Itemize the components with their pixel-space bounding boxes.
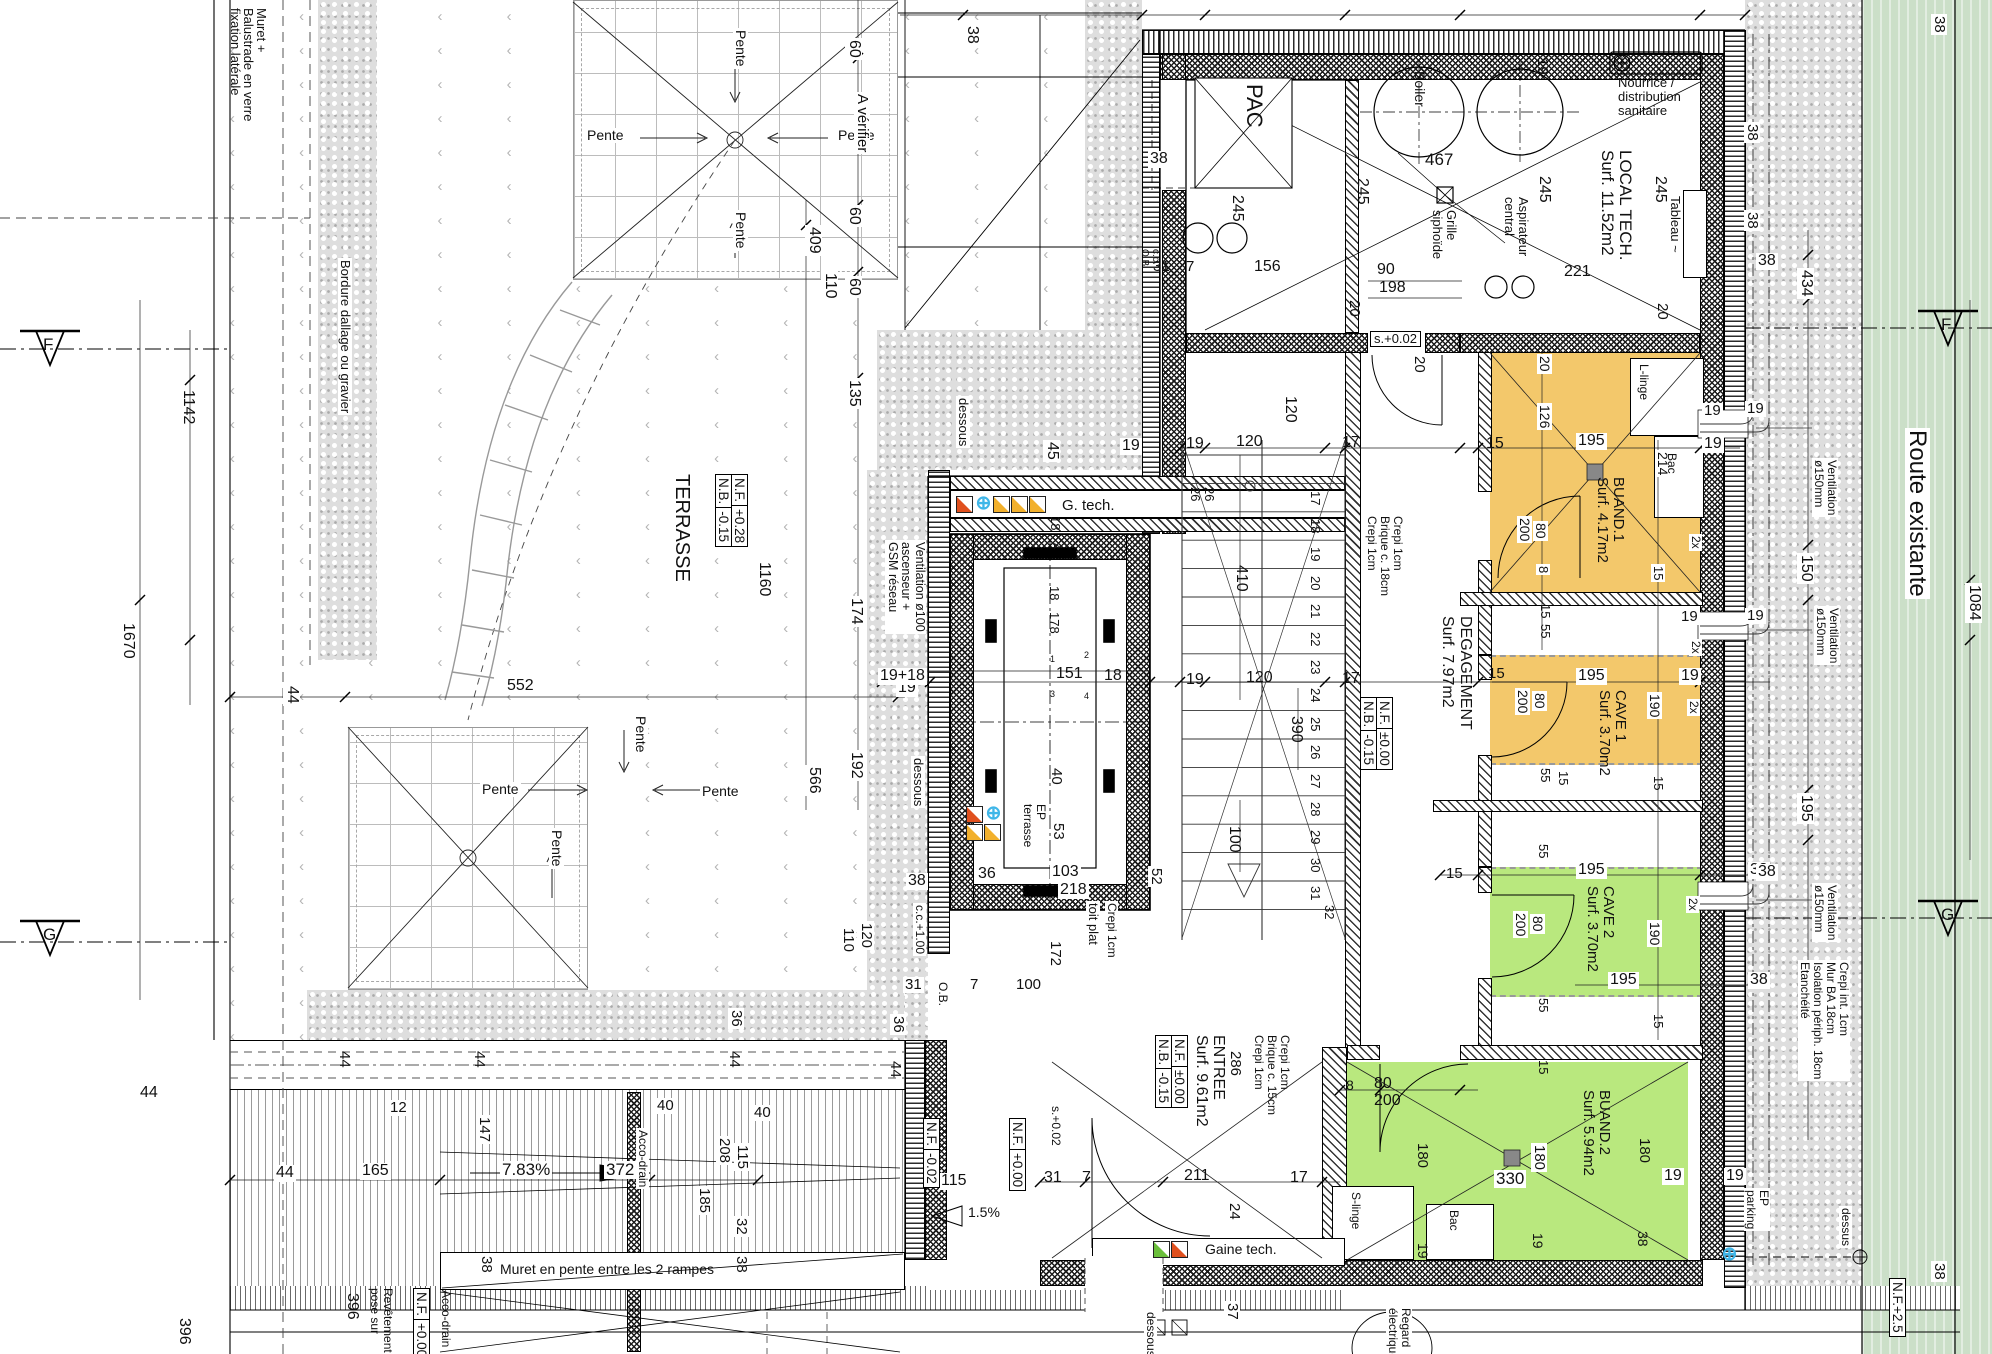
dim: 19 — [1745, 401, 1766, 417]
stair-number: 19 — [1308, 547, 1322, 561]
dim: 245 — [1651, 176, 1668, 203]
dim: 20 — [1537, 354, 1552, 374]
label-bac: Bac — [1665, 453, 1678, 474]
dim: 44 — [274, 1165, 296, 1182]
dim: 566 — [805, 765, 822, 796]
note-ventilation: Ventilation ø150mm — [1812, 883, 1838, 942]
dim: 552 — [505, 678, 536, 695]
dim: 1160 — [755, 560, 772, 598]
dim: 15 — [1488, 666, 1505, 682]
level-box: N.F.±0.00N.B.-0.15 — [1155, 1035, 1188, 1108]
dim: 19 — [1679, 609, 1700, 625]
dim: 115 — [939, 1173, 969, 1190]
level-value: N.F. — [414, 1289, 429, 1320]
level-value: -0.15 — [1361, 731, 1376, 768]
dim: 190 — [1647, 692, 1662, 719]
dim: 15 — [1538, 604, 1552, 618]
dim: 4 — [1049, 543, 1062, 550]
dim: 200 — [1374, 1093, 1401, 1110]
dim: 44 — [887, 1061, 903, 1078]
dim: 31 — [1044, 1170, 1062, 1187]
annotation: Crepi 1cm — [1105, 901, 1118, 960]
dim: 80 — [1530, 914, 1545, 934]
annotation: O.B. — [936, 980, 949, 1008]
dim: 110 — [821, 271, 838, 301]
label-pac: PAC — [1243, 84, 1266, 128]
dim: 396 — [343, 1293, 360, 1320]
wall-pac-localtech — [1345, 80, 1359, 333]
dim: 165 — [360, 1163, 391, 1180]
slope-label: 7.83% — [500, 1161, 552, 1179]
tile-grid-inner-dash — [356, 735, 580, 982]
wall-buand2-north — [1460, 1045, 1703, 1060]
note-ventilation: Ventilation ø150mm — [1814, 606, 1840, 665]
dim: 15 — [1536, 1060, 1550, 1074]
dim: 190 — [1647, 920, 1662, 947]
dim: 410 — [1232, 565, 1249, 592]
dim: 19 — [1415, 1243, 1430, 1259]
wall-corridor-rooms — [1478, 560, 1492, 655]
room-label-local-tech: LOCAL TECH. Surf. 11.52m2 — [1598, 150, 1634, 261]
dim: 44 — [140, 1085, 158, 1102]
dim: 20 — [1654, 303, 1670, 320]
dim: 80 — [1533, 521, 1548, 541]
dim: 19 — [1534, 58, 1550, 75]
section-letter-g: G — [1941, 906, 1954, 924]
annotation: 4 — [1084, 692, 1089, 702]
dim: 24 — [1226, 1203, 1242, 1220]
wall-localtech-south — [1186, 333, 1368, 353]
dim: 38 — [963, 24, 980, 46]
dim: 200 — [1515, 688, 1530, 715]
dim: 40 — [1048, 768, 1064, 785]
room-label-buand2: BUAND.2 Surf. 5.94m2 — [1580, 1090, 1612, 1176]
green-hatch-icon — [1153, 1241, 1170, 1258]
dim: 195 — [1608, 972, 1639, 989]
annotation: Pente — [480, 782, 521, 797]
dim: 434 — [1797, 268, 1814, 299]
dim: 245 — [1353, 178, 1370, 205]
stair-number: 24 — [1308, 688, 1322, 702]
dim: 218 — [1058, 882, 1089, 899]
stair-number: 26 — [1308, 745, 1322, 759]
dim: 7 — [1082, 1170, 1091, 1187]
dim: 120 — [1236, 434, 1263, 451]
dim: 38 — [1635, 1231, 1650, 1247]
note-wall-build-up-ext: Crepi int. 1cm Mur BA 18cm Isolation pér… — [1798, 960, 1850, 1081]
dim: 396 — [175, 1318, 192, 1345]
red-hatch-icon — [966, 806, 983, 823]
dim: 38 — [1756, 864, 1778, 881]
annotation: toit plat — [1086, 901, 1100, 947]
wall-entree-west-outer — [905, 1040, 925, 1260]
annotation: 2 — [1084, 651, 1089, 661]
walkway-band — [230, 1040, 905, 1090]
dim: 195 — [1797, 793, 1814, 824]
stair-number: 18 — [1308, 519, 1322, 533]
dim: 26 26 — [1189, 487, 1216, 501]
dim: 115 — [734, 1143, 750, 1171]
level-note: s.+0.02 — [1370, 331, 1421, 347]
dim: 19 — [1186, 436, 1204, 453]
label-lave-linge: L-linge — [1637, 364, 1650, 400]
dim: 178 — [1047, 612, 1061, 634]
level-value: N.F. — [1172, 1036, 1187, 1067]
dim: 55 — [1536, 844, 1550, 858]
note-bordure: Bordure dallage ou gravier — [338, 258, 352, 415]
note-ventilation-ascenseur: Ventilation ø100 ascenseur + GSM réseau — [886, 540, 927, 634]
dim: 120 — [1246, 670, 1273, 687]
room-label-buand1: BUAND.1 Surf. 4.17m2 — [1594, 477, 1626, 563]
red-hatch-icon — [1171, 1241, 1188, 1258]
yellow-hatch-icon — [1029, 496, 1046, 513]
dim: 467 — [1425, 151, 1453, 169]
stair-number: 31 — [1308, 886, 1322, 900]
dim: 38 — [1148, 151, 1170, 168]
dim: 60 — [845, 205, 862, 227]
peripheral-ground-strip — [1745, 0, 1863, 1288]
dim: 55 — [1536, 998, 1550, 1012]
dim: 55 — [1538, 768, 1552, 782]
wall-buand1-south — [1460, 592, 1703, 606]
stair-number: 32 — [1322, 905, 1336, 919]
wall-north-outer — [1142, 30, 1745, 54]
terrace-paving-pattern: ‹ ‹ ‹ ‹ ‹ ‹ ‹ ‹ ‹ ‹ ‹ ‹ ‹ ‹ ‹ ‹ ‹ ‹ ‹ ‹ … — [905, 0, 1085, 330]
dim: 8 — [1536, 564, 1550, 575]
dim: 40 — [752, 1105, 773, 1121]
dim: 44 — [283, 684, 300, 706]
dim: 180 — [1414, 1143, 1430, 1168]
annotation: c.c.+1.00 — [913, 903, 926, 956]
dim: 185 — [696, 1186, 712, 1215]
level-value: N.F. — [732, 475, 747, 506]
annotation: dessous — [1144, 1310, 1157, 1354]
label-route-existante: Route existante — [1905, 428, 1930, 599]
note-muret-balustrade: Muret + Balustrade en verre fixation lat… — [229, 8, 268, 121]
note-revetement: Revêtement pose sur — [368, 1288, 394, 1353]
dim: 80 — [1532, 691, 1547, 711]
dim: 37 — [1224, 1301, 1240, 1322]
wall-east-outer — [1724, 30, 1746, 1288]
annotation: dessous — [911, 756, 925, 808]
level-value: +0.00 — [1010, 1150, 1025, 1190]
utility-marker-group: ⊕ — [956, 496, 1156, 514]
dim: 330 — [1494, 1170, 1526, 1188]
dim: 38 — [1748, 972, 1770, 989]
wall-stair-corridor — [1345, 352, 1361, 1052]
dim: 19 — [1186, 672, 1204, 689]
level-value: ±0.00 — [1377, 729, 1392, 769]
dim: 38 — [478, 1256, 494, 1273]
dim: 7 — [968, 977, 980, 993]
dim: 245 — [1228, 195, 1245, 222]
dim: 211 — [1184, 1168, 1210, 1185]
dim: 38 — [1931, 1261, 1947, 1282]
dim: 1142 — [179, 390, 196, 424]
dim: 40 — [655, 1098, 676, 1114]
label-boiler: Boiler — [1412, 71, 1427, 107]
section-letter-f: F — [1941, 316, 1951, 334]
level-value: +0.00 — [414, 1320, 429, 1354]
level-box: N.F.+0.00 — [413, 1288, 430, 1354]
dim: 38 — [1744, 122, 1760, 143]
dim: 38 — [733, 1256, 749, 1273]
annotation: Pente — [700, 784, 741, 799]
annotation: 2x — [1689, 639, 1702, 656]
level-value: N.B. — [1156, 1036, 1171, 1069]
yellow-hatch-icon — [984, 824, 1001, 841]
dim: 15 — [1651, 1014, 1665, 1028]
dim: 44 — [726, 1051, 742, 1068]
dim: 44 — [471, 1051, 487, 1068]
label-tableau: Tableau ~ — [1668, 196, 1682, 253]
level-value: N.B. — [716, 475, 731, 508]
dim: 15 — [1486, 436, 1504, 453]
annotation: 1 — [1050, 655, 1055, 665]
gravel-border — [877, 330, 1150, 476]
dim: 90 — [1377, 262, 1395, 279]
stair-number: 22 — [1308, 632, 1322, 646]
level-box: N.F.±0.00N.B.-0.15 — [1360, 697, 1393, 770]
dim: 18 — [1048, 516, 1062, 530]
ep-crosshair-icon: ⊕ — [974, 496, 993, 513]
level-value: N.F. — [1010, 1119, 1025, 1150]
dim: 1084 — [1965, 583, 1982, 623]
level-value: -0.02 — [924, 1150, 939, 1187]
dim: 372 — [604, 1161, 636, 1179]
dim: 38 — [906, 873, 928, 890]
annotation: Pente — [733, 210, 748, 251]
stair-number: 20 — [1308, 576, 1322, 590]
annotation: Pente — [549, 828, 564, 869]
note-ep-parking: EP parking — [1744, 1188, 1770, 1231]
wall-cave1-south — [1433, 800, 1703, 812]
annotation: Pente — [633, 714, 648, 755]
note-ep-terrasse: EP terrasse — [1022, 804, 1047, 847]
note-nourrice: Nourrice / distribution sanitaire — [1618, 76, 1681, 118]
stair-number: 27 — [1308, 774, 1322, 788]
wall-localtech-south — [1425, 333, 1460, 353]
label-aspirateur: Aspirateur central — [1503, 197, 1530, 256]
dim: 19 — [1679, 668, 1701, 685]
dim: 36 — [890, 1014, 906, 1035]
dim: 180 — [1636, 1138, 1652, 1163]
room-label-cave1: CAVE 1 Surf. 3.70m2 — [1596, 690, 1628, 776]
red-hatch-icon — [956, 496, 973, 513]
dim: 17 — [1290, 1170, 1308, 1187]
gravel-border — [1085, 0, 1142, 333]
stair-number: 28 — [1308, 802, 1322, 816]
dim: 245 — [1535, 176, 1552, 203]
stair-number: 23 — [1308, 660, 1322, 674]
label-acco-drain: Acco-drain — [636, 1128, 649, 1189]
dim: 135 — [845, 378, 862, 409]
dim: 15 — [1446, 866, 1463, 882]
dim: 36 — [976, 866, 998, 883]
dim: 18 — [1047, 586, 1061, 600]
dim: 19+18 — [878, 668, 927, 685]
ep-crosshair-icon: ⊕ — [984, 806, 1003, 823]
level-value: ±0.00 — [1172, 1067, 1187, 1107]
annotation: 2x — [1687, 699, 1700, 716]
dim: 19 — [1745, 608, 1766, 624]
wall-elevator-west-outer — [928, 470, 950, 954]
dim: 1670 — [119, 623, 136, 659]
dim: 151 — [1056, 666, 1083, 683]
yellow-hatch-icon — [966, 824, 983, 841]
dim: 100 — [1225, 826, 1242, 853]
dim: 19 — [1702, 436, 1724, 453]
level-value: -0.15 — [716, 508, 731, 545]
dim: 38 — [1931, 14, 1947, 35]
dim: 195 — [1576, 668, 1607, 685]
utility-marker-group: ⊕ — [1720, 1247, 1750, 1264]
utility-marker-group: ⊕ — [966, 806, 1006, 842]
dim: 200 — [1513, 911, 1528, 938]
dim: 156 — [1254, 259, 1281, 276]
stair-number: 17 — [1308, 491, 1322, 505]
label-grille-siphoide: Grille siphoïde — [1431, 210, 1458, 259]
dim: 208 — [716, 1136, 732, 1165]
level-box: N.F.-0.02 — [923, 1118, 940, 1188]
level-value: N.B. — [1361, 698, 1376, 731]
room-label-cave2: CAVE 2 Surf. 3.70m2 — [1584, 886, 1616, 972]
level-value: N.F. — [1377, 698, 1392, 729]
dim: 19 — [1662, 1168, 1684, 1185]
yellow-hatch-icon — [1011, 496, 1028, 513]
dim: 390 — [1287, 716, 1304, 743]
dim: 192 — [847, 750, 864, 781]
wall-buand2-north — [1347, 1045, 1380, 1060]
stair-number: 25 — [1308, 717, 1322, 731]
level-value: -0.15 — [1156, 1069, 1171, 1106]
dim: 120 — [858, 921, 874, 950]
route-existante-band — [1862, 0, 1992, 1354]
wall-corridor-rooms — [1478, 867, 1492, 893]
note-muret-rampes: Muret en pente entre les 2 rampes — [500, 1262, 714, 1277]
level-value: N.F.+2.5 — [1890, 1279, 1905, 1336]
note-wall-build-up: Crepi 1cm Brique c. 18cm Crepi 1cm — [1365, 516, 1404, 596]
dim: 18 — [1104, 668, 1122, 685]
stair-number: 29 — [1308, 830, 1322, 844]
dim: 286 — [1227, 1051, 1243, 1076]
dim: 19 — [1702, 403, 1723, 419]
dim: 150 — [1797, 553, 1814, 584]
dim: 19 — [1724, 1168, 1746, 1185]
dim: 36 — [728, 1008, 744, 1029]
wall-west-outer — [1142, 54, 1160, 534]
wall-localtech-south — [1460, 333, 1700, 353]
dim: 409 — [805, 225, 822, 256]
dim: 60 — [845, 38, 862, 60]
annotation: 3 — [1050, 690, 1055, 700]
dim: 15 — [1651, 776, 1665, 790]
annotation: 2x — [1686, 896, 1699, 913]
section-letter-f: F — [43, 336, 53, 354]
note-ventilation: Ventilation ø150mm — [1812, 458, 1838, 517]
dim: 8 — [1346, 1078, 1354, 1093]
wall-gtech-north — [950, 476, 1345, 490]
wall-west-insulation — [1162, 54, 1186, 80]
dim: 32 — [733, 1216, 749, 1237]
elevator-shaft-wall — [950, 534, 974, 910]
dim: 120 — [1281, 396, 1298, 423]
section-letter-g: G — [43, 926, 56, 944]
dim: 17 — [1342, 435, 1360, 452]
dim: 12 — [388, 1100, 409, 1116]
tableau-electrical-panel — [1683, 190, 1707, 278]
dim: 53 — [1050, 823, 1066, 840]
note-wall-build-up: Crepi 1cm Brique c. 15cm Crepi 1cm — [1252, 1035, 1291, 1115]
room-label-degagement: DEGAGEMENT Surf. 7.97m2 — [1439, 616, 1474, 730]
dim: 100 — [1014, 977, 1043, 993]
annotation: Pente — [733, 28, 748, 69]
wall-corridor-rooms — [1478, 352, 1492, 492]
dim: 52 — [1148, 866, 1164, 887]
elevator-shaft-wall — [950, 884, 1150, 910]
dim: 180 — [1531, 1143, 1547, 1172]
level-box: N.F.+2.5 — [1889, 1278, 1906, 1337]
level-value: N.F. — [924, 1119, 939, 1150]
room-label-entree: ENTREE Surf. 9.61m2 — [1193, 1035, 1227, 1127]
dim: 221 — [1564, 264, 1591, 281]
dim: 44 — [336, 1051, 352, 1068]
level-note: s.+0.02 — [1049, 1106, 1062, 1146]
level-box: N.F.+0.28N.B.-0.15 — [715, 474, 748, 547]
annotation: dessus — [1839, 1206, 1852, 1248]
dim: 38 — [1744, 210, 1760, 231]
annotation: dessous — [956, 396, 970, 448]
ep-crosshair-icon: ⊕ — [1720, 1247, 1739, 1264]
dim: 19 — [1530, 1233, 1545, 1249]
dim: 31 — [903, 977, 924, 993]
level-box: N.F.+0.00 — [1009, 1118, 1026, 1191]
annotation: A vérifier — [854, 92, 870, 154]
dim: 20 — [1411, 356, 1427, 373]
dim: 38 — [1756, 253, 1778, 270]
label-seche-linge: S-linge — [1349, 1192, 1362, 1229]
dim: 147 — [476, 1115, 492, 1144]
dim: 198 — [1379, 280, 1406, 297]
stair-number: 30 — [1308, 858, 1322, 872]
slope-label: 1.5% — [966, 1205, 1002, 1220]
dim: 172 — [1047, 941, 1063, 966]
dim: 126 — [1537, 403, 1552, 430]
dim: 195 — [1576, 862, 1607, 879]
level-value: +0.28 — [732, 506, 747, 546]
label-bac: Bac — [1447, 1210, 1460, 1231]
dim: 45 — [1043, 440, 1060, 462]
dim: 7 — [1186, 259, 1194, 275]
dim: 31 — [1153, 259, 1170, 275]
dim: 110 — [840, 926, 856, 954]
utility-marker-group — [1153, 1241, 1353, 1259]
dim: 200 — [1517, 516, 1532, 543]
label-acco-drain: Acco-drain — [439, 1290, 452, 1347]
wall-gtech-south — [950, 518, 1345, 532]
gravel-border — [307, 990, 905, 1040]
dim: 15 — [1651, 564, 1665, 582]
dim: 15 — [1556, 771, 1570, 785]
dim: 60 — [845, 276, 862, 298]
annotation: 2x — [1689, 534, 1702, 551]
floor-plan-canvas: ‹ ‹ ‹ ‹ ‹ ‹ ‹ ‹ ‹ ‹ ‹ ‹ ‹ ‹ ‹ ‹ ‹ ‹ ‹ ‹ … — [0, 0, 1992, 1354]
elevator-shaft-wall — [1126, 534, 1150, 910]
dim: 195 — [1576, 433, 1607, 450]
dim: 55 — [1538, 624, 1552, 638]
stair-number: 21 — [1308, 604, 1322, 618]
dim: 17 — [1342, 671, 1360, 688]
